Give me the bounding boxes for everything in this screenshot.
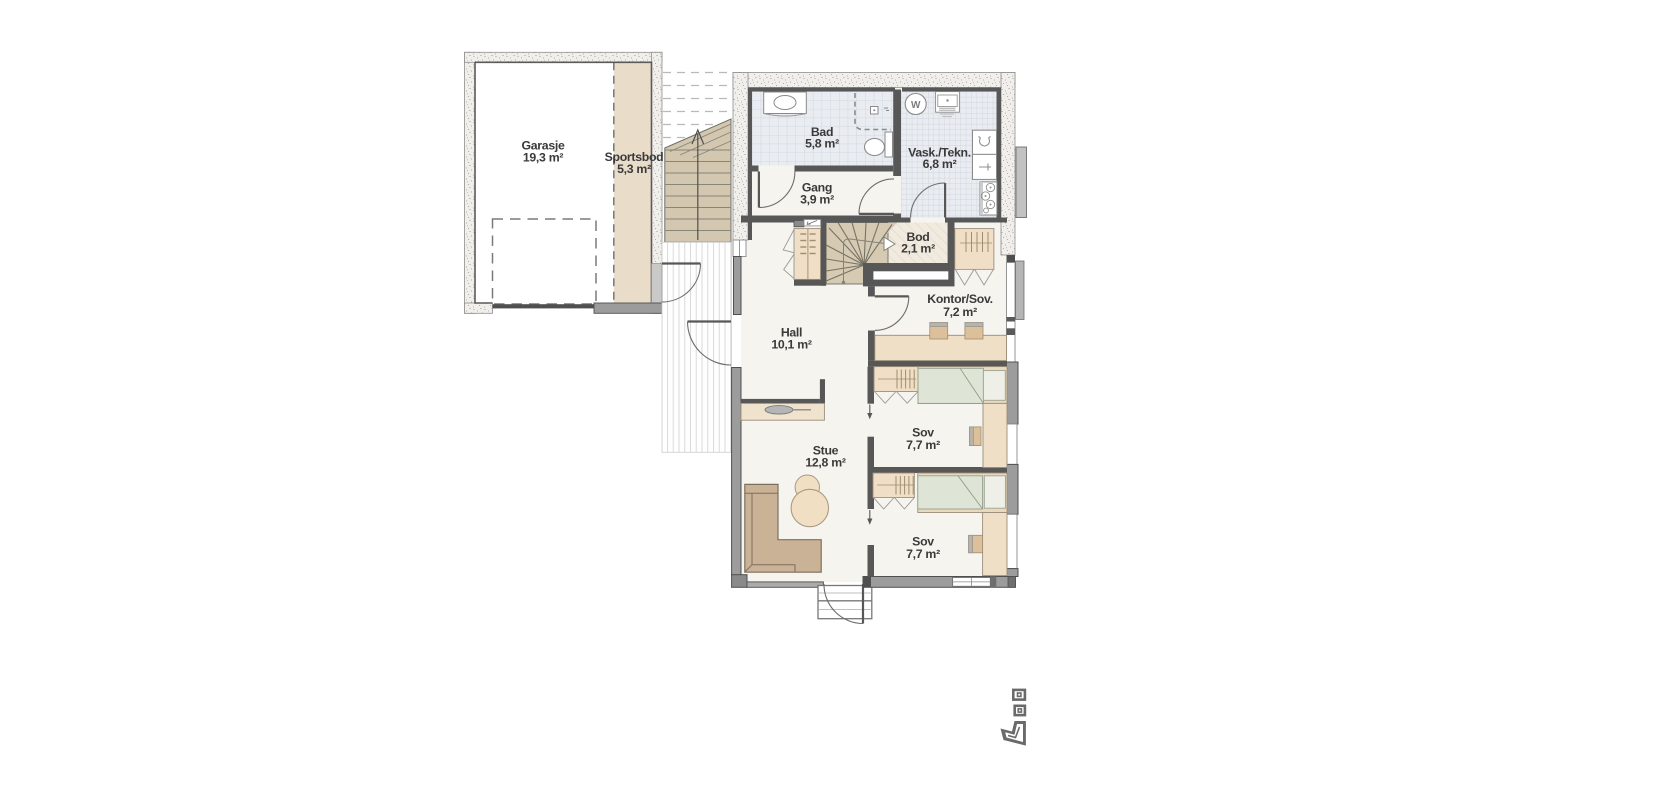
svg-text:7,2 m²: 7,2 m²	[943, 305, 977, 319]
svg-text:19,3 m²: 19,3 m²	[523, 151, 563, 165]
svg-text:7,7 m²: 7,7 m²	[906, 547, 940, 561]
svg-text:Kontor/Sov.: Kontor/Sov.	[927, 292, 992, 306]
svg-text:6,8 m²: 6,8 m²	[923, 157, 957, 171]
svg-text:7,7 m²: 7,7 m²	[906, 438, 940, 452]
svg-text:5,8 m²: 5,8 m²	[805, 136, 839, 150]
svg-text:W: W	[911, 100, 921, 111]
svg-text:5,3 m²: 5,3 m²	[617, 162, 651, 176]
svg-text:10,1 m²: 10,1 m²	[771, 337, 811, 351]
svg-text:12,8 m²: 12,8 m²	[805, 455, 845, 469]
svg-text:3,9 m²: 3,9 m²	[800, 193, 834, 207]
svg-text:2,1 m²: 2,1 m²	[901, 242, 935, 256]
